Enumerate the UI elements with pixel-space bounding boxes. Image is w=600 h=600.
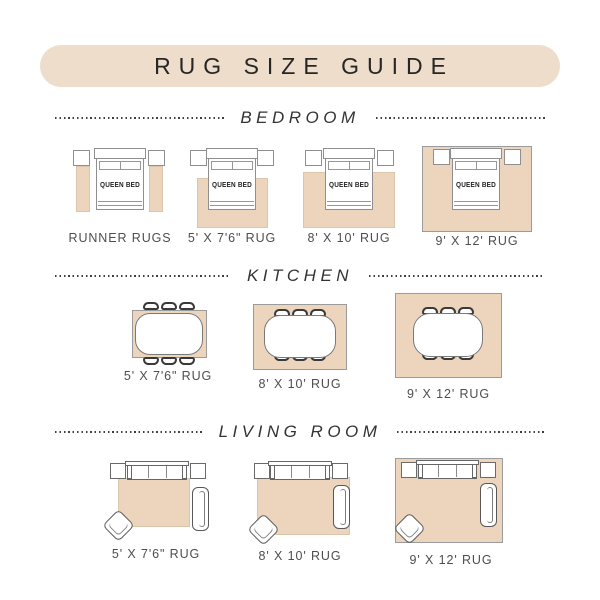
- nightstand-icon: [433, 149, 450, 165]
- armchair-icon: [333, 485, 350, 529]
- bed-body: QUEEN BED: [208, 158, 256, 210]
- diagram-label: 5' X 7'6" RUG: [188, 231, 276, 245]
- pillows: [211, 161, 253, 170]
- nightstand-icon: [377, 150, 394, 166]
- diagram-bedroom-9x12: QUEEN BED 9' X 12' RUG: [421, 144, 533, 248]
- dining-chair-icon: [143, 302, 159, 310]
- section-title-living-room: LIVING ROOM: [219, 422, 382, 442]
- nightstand-icon: [504, 149, 521, 165]
- dining-chair-icon: [179, 302, 195, 310]
- armchair-icon: [192, 487, 209, 531]
- diagram-label: 8' X 10' RUG: [308, 231, 391, 245]
- diagram-kitchen-8x10: 8' X 10' RUG: [250, 296, 350, 396]
- pillows: [328, 161, 370, 170]
- nightstand-icon: [305, 150, 322, 166]
- sofa-icon: [418, 460, 477, 479]
- title-banner: RUG SIZE GUIDE: [40, 45, 560, 87]
- side-table-icon: [110, 463, 126, 479]
- dining-chair-icon: [161, 357, 177, 365]
- dotted-line-left: [55, 117, 224, 119]
- side-table-icon: [480, 462, 496, 478]
- side-table-icon: [190, 463, 206, 479]
- diagram-label: 5' X 7'6" RUG: [112, 547, 200, 561]
- pillows: [99, 161, 141, 170]
- side-table-icon: [401, 462, 417, 478]
- diagram-label: 9' X 12' RUG: [407, 387, 490, 401]
- dotted-line-right: [376, 117, 545, 119]
- dotted-line-left: [55, 431, 203, 433]
- dining-table-icon: [413, 313, 483, 357]
- section-header-kitchen: KITCHEN: [55, 265, 545, 287]
- runner-rug-right: [149, 166, 163, 212]
- diagram-kitchen-5x76: 5' X 7'6" RUG: [118, 296, 218, 396]
- diagram-bedroom-8x10: QUEEN BED 8' X 10' RUG: [301, 146, 397, 246]
- bed-label: QUEEN BED: [211, 182, 253, 189]
- dining-chair-icon: [161, 302, 177, 310]
- diagram-label: 9' X 12' RUG: [410, 553, 493, 567]
- section-header-living-room: LIVING ROOM: [55, 421, 545, 443]
- queen-bed-icon: QUEEN BED: [96, 148, 144, 210]
- side-table-icon: [332, 463, 348, 479]
- bed-label: QUEEN BED: [455, 182, 497, 189]
- blanket-lines: [327, 201, 371, 206]
- blanket-lines: [454, 201, 498, 206]
- diagram-label: 5' X 7'6" RUG: [124, 369, 212, 383]
- dining-table-icon: [135, 313, 203, 355]
- diagram-label: 8' X 10' RUG: [259, 549, 342, 563]
- page-title: RUG SIZE GUIDE: [146, 53, 454, 80]
- dotted-line-right: [369, 275, 545, 277]
- queen-bed-icon: QUEEN BED: [452, 148, 500, 210]
- dotted-line-right: [397, 431, 545, 433]
- section-header-bedroom: BEDROOM: [55, 107, 545, 129]
- diagram-bedroom-runner-rugs: QUEEN BED RUNNER RUGS: [72, 146, 168, 246]
- diagram-living-9x12: 9' X 12' RUG: [392, 452, 510, 570]
- diagram-label: 9' X 12' RUG: [436, 234, 519, 248]
- queen-bed-icon: QUEEN BED: [325, 148, 373, 210]
- blanket-lines: [98, 201, 142, 206]
- queen-bed-icon: QUEEN BED: [208, 148, 256, 210]
- runner-rug-left: [76, 166, 90, 212]
- rug-size-guide-infographic: RUG SIZE GUIDE BEDROOM QUEEN BED RUNNER …: [0, 0, 600, 600]
- nightstand-icon: [73, 150, 90, 166]
- sofa-icon: [127, 461, 187, 480]
- section-title-kitchen: KITCHEN: [247, 266, 353, 286]
- diagram-label: RUNNER RUGS: [69, 231, 172, 245]
- pillows: [455, 161, 497, 170]
- bed-body: QUEEN BED: [452, 158, 500, 210]
- diagram-kitchen-9x12: 9' X 12' RUG: [395, 290, 502, 402]
- nightstand-icon: [257, 150, 274, 166]
- bed-label: QUEEN BED: [328, 182, 370, 189]
- bed-body: QUEEN BED: [96, 158, 144, 210]
- sofa-icon: [270, 461, 330, 480]
- nightstand-icon: [190, 150, 207, 166]
- dining-chair-icon: [179, 357, 195, 365]
- diagram-living-5x76: 5' X 7'6" RUG: [100, 455, 212, 567]
- blanket-lines: [210, 201, 254, 206]
- armchair-icon: [480, 483, 497, 527]
- nightstand-icon: [148, 150, 165, 166]
- dining-chair-icon: [143, 357, 159, 365]
- bed-body: QUEEN BED: [325, 158, 373, 210]
- dining-table-icon: [264, 315, 336, 358]
- dotted-line-left: [55, 275, 231, 277]
- bed-label: QUEEN BED: [99, 182, 141, 189]
- diagram-bedroom-5x76: QUEEN BED 5' X 7'6" RUG: [184, 146, 280, 246]
- section-title-bedroom: BEDROOM: [240, 108, 359, 128]
- diagram-living-8x10: 8' X 10' RUG: [240, 455, 360, 567]
- diagram-label: 8' X 10' RUG: [259, 377, 342, 391]
